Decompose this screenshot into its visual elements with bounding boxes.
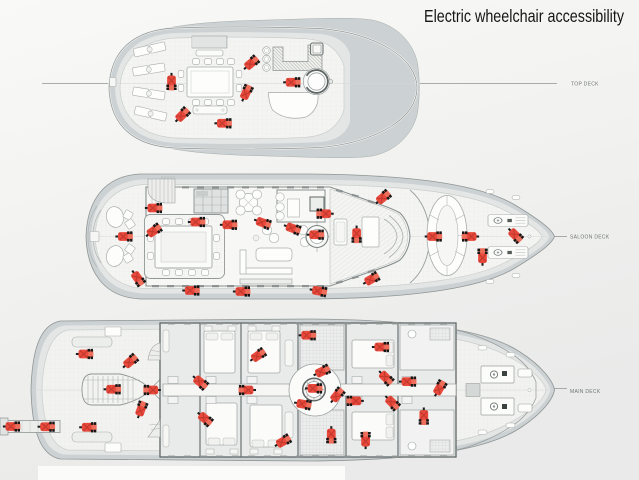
svg-text:TOP DECK: TOP DECK: [571, 82, 599, 88]
svg-text:MAIN DECK: MAIN DECK: [570, 389, 601, 395]
svg-text:SALOON DECK: SALOON DECK: [570, 235, 610, 241]
svg-text:Electric wheelchair accessibil: Electric wheelchair accessibility: [424, 6, 624, 26]
